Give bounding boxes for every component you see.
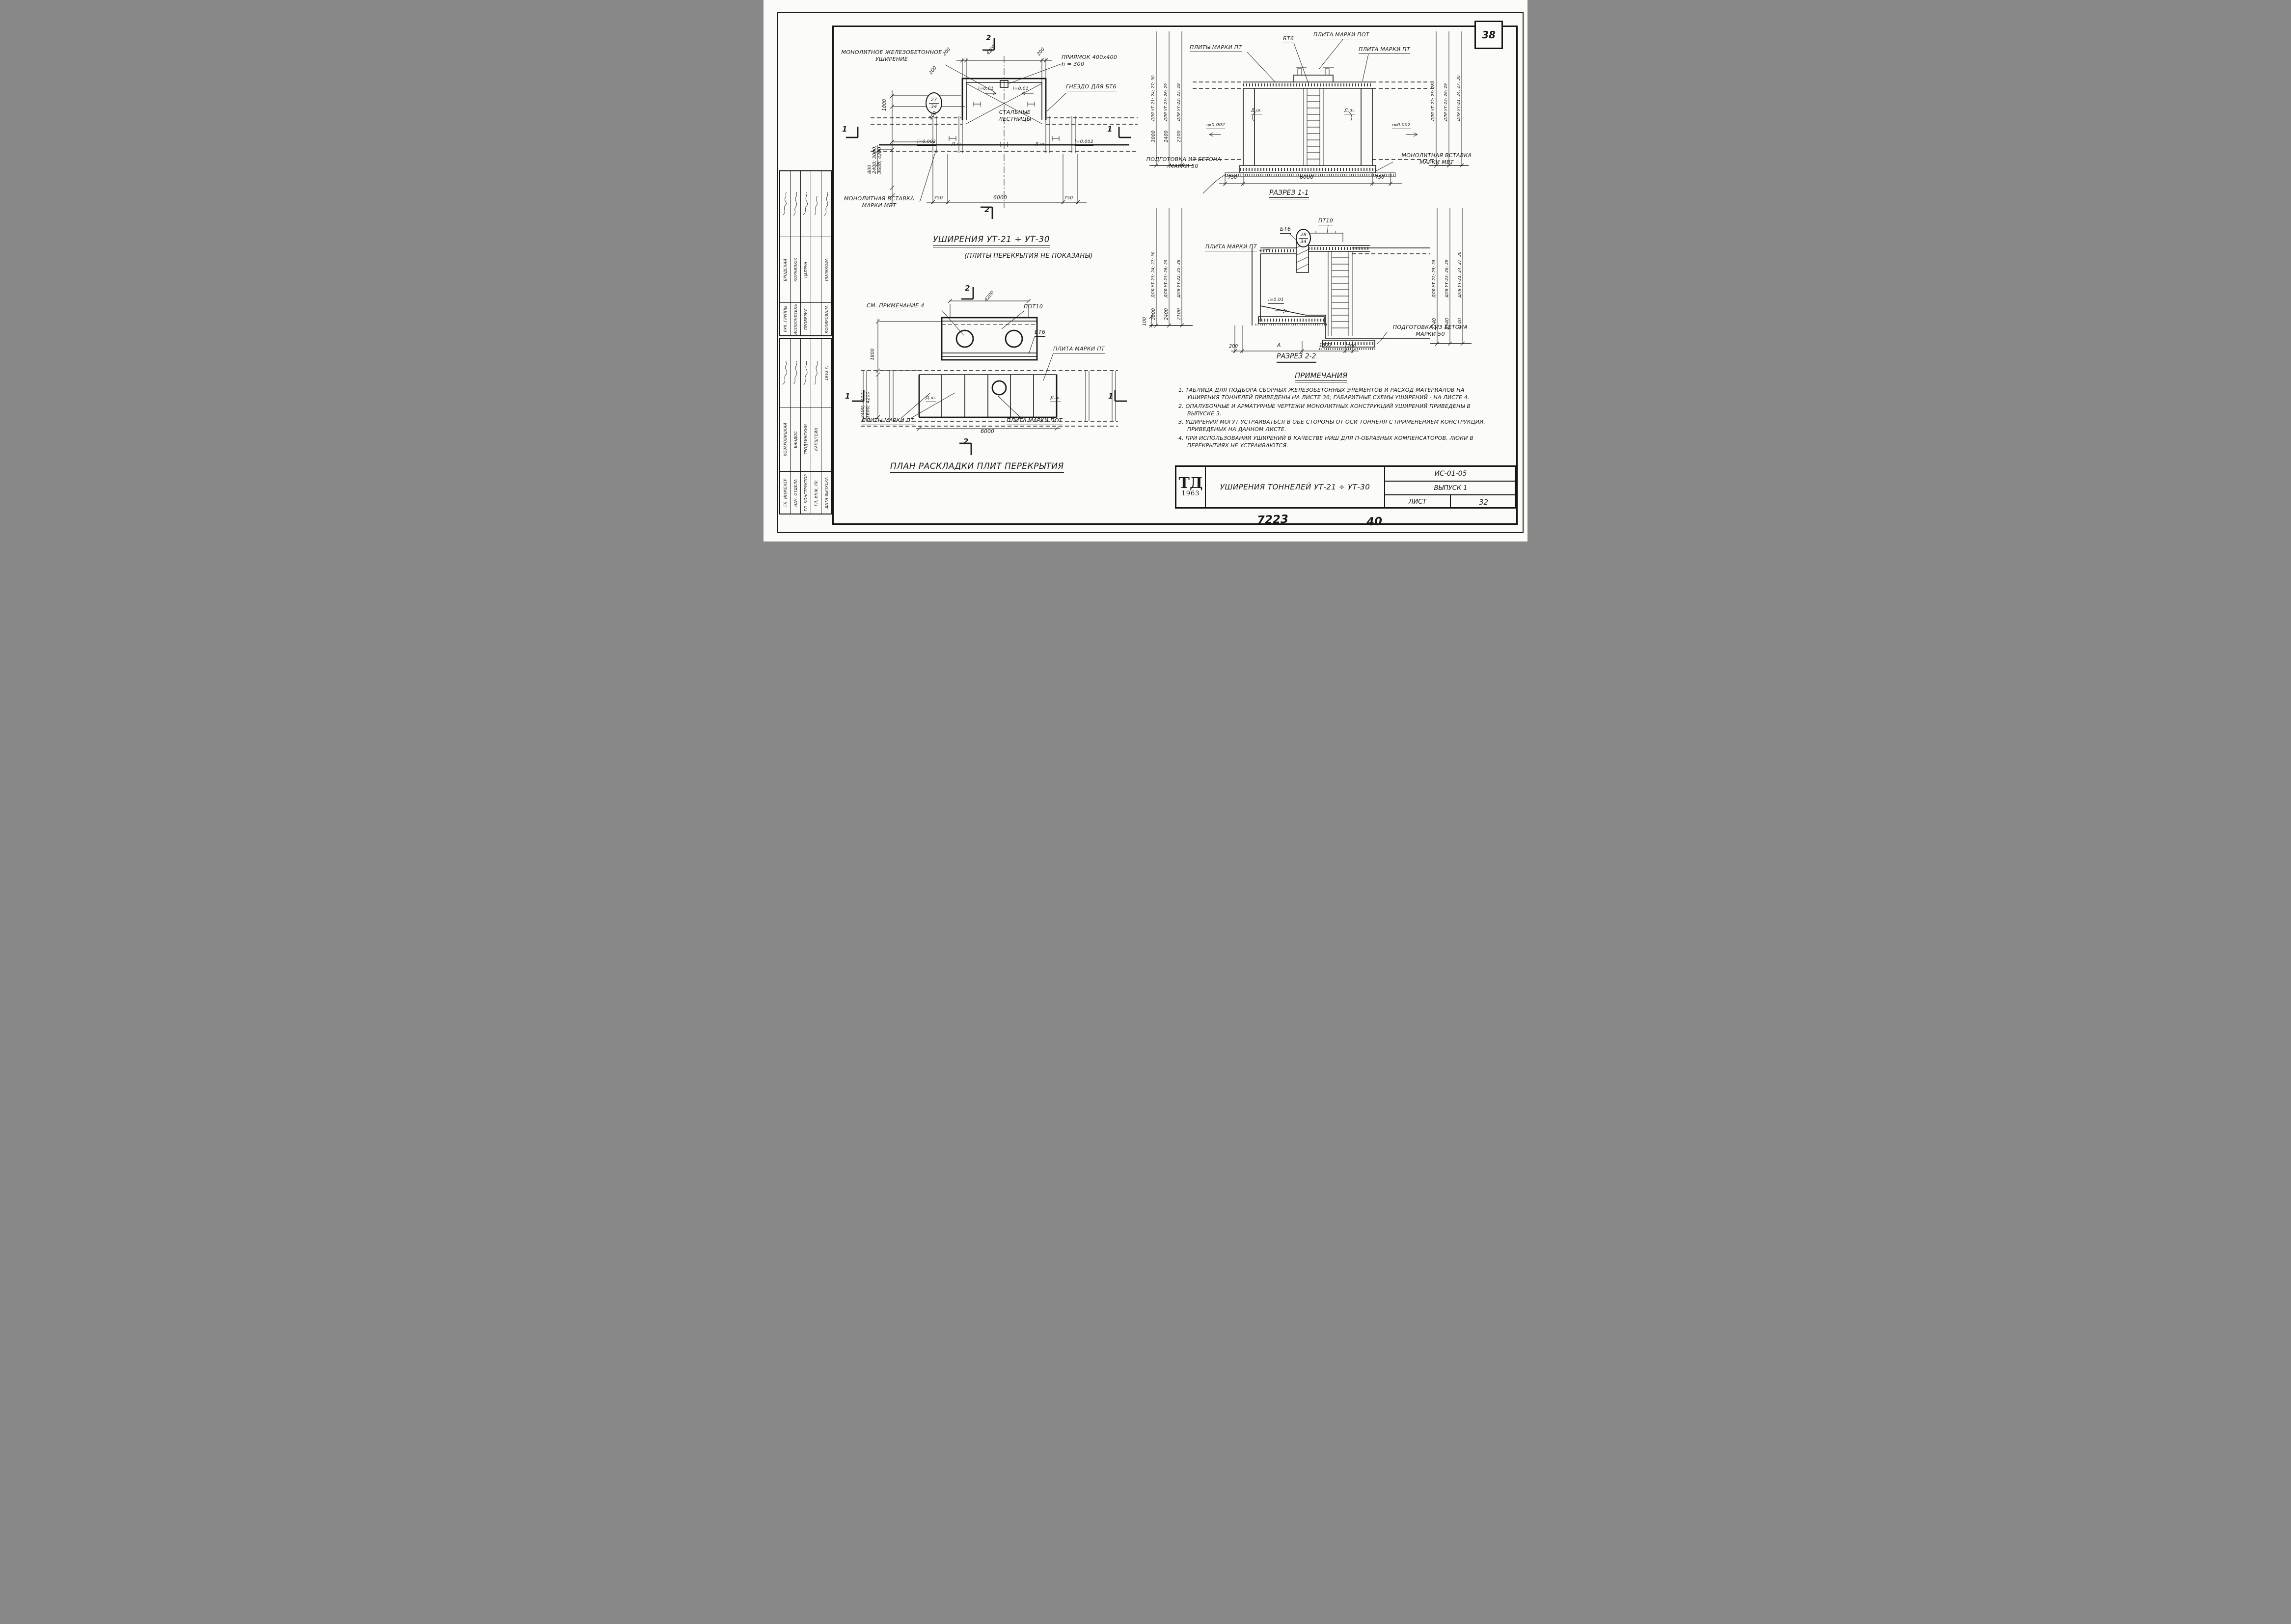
detail-mark-top: 28 <box>1300 232 1307 238</box>
col-label-left-3: ДЛЯ УТ-22; 25; 28 <box>1177 30 1181 121</box>
signature-icon <box>812 189 820 219</box>
role-cell: ДАТА ВЫПУСКА <box>821 472 831 514</box>
col-label-right-2: ДЛЯ УТ-23; 26; 29 <box>1445 210 1449 298</box>
label-pit: ПРИЯМОК 400х400 h = 300 <box>1062 54 1140 68</box>
dim-bottom-6000: 6000 <box>993 194 1007 201</box>
label-plate-pt: ПЛИТА МАРКИ ПТ <box>1053 346 1105 353</box>
org-logo: ТД 1963 <box>1176 467 1205 507</box>
col-label-right-3: ДЛЯ УТ-21; 24; 27; 30 <box>1458 210 1462 298</box>
dim-bottom-750-right: 750 <box>1064 195 1073 201</box>
label-slope-i0002-left: i=0.002 <box>917 139 936 146</box>
label-joint-right: Д.ш. <box>1344 108 1355 114</box>
dim-left-800: 800 <box>868 157 873 174</box>
section-mark-2-top: 2 <box>965 284 970 293</box>
label-monolithic-insert: МОНОЛИТНАЯ ВСТАВКА МАРКИ МВТ <box>836 195 922 209</box>
label-plate-pt: ПЛИТА МАРКИ ПТ <box>1205 244 1257 251</box>
label-bt6: БТ6 <box>1280 226 1291 234</box>
col-label-left-2: ДЛЯ УТ-23; 26; 29 <box>1164 30 1169 121</box>
stamp-col: 1963 г. ДАТА ВЫПУСКА <box>821 339 831 514</box>
stamp-col <box>811 171 821 335</box>
dimension-lines <box>876 299 1061 431</box>
role-cell: ГЛ. КОНСТРУКТОР <box>801 472 811 514</box>
title-block: ТД 1963 УШИРЕНИЯ ТОННЕЛЕЙ УТ-21 ÷ УТ-30 … <box>1175 465 1516 509</box>
role-cell: ГЛ. ИНЖЕНЕР <box>780 472 790 514</box>
role-cell: НАЧ. ОТДЕЛА <box>791 472 800 514</box>
role-cell: ПРОВЕРИЛ <box>801 303 811 335</box>
stamp-role: ИСПОЛНИТЕЛЬ <box>793 304 798 335</box>
empty-cell <box>821 407 831 472</box>
signature-icon <box>781 358 789 388</box>
signature-cell <box>791 171 800 237</box>
stamp-col: БАНДОС НАЧ. ОТДЕЛА <box>791 339 801 514</box>
signature-icon <box>802 189 810 219</box>
col-label-left-1: ДЛЯ УТ-21; 24; 27; 30 <box>1151 30 1156 121</box>
name-cell: ПОЛЯКОВА <box>821 237 831 303</box>
dim-750-right: 750 <box>1375 175 1384 180</box>
label-slope-right: i=0.002 <box>1392 123 1411 129</box>
label-steel-stairs: СТАЛЬНЫЕ ЛЕСТНИЦЫ <box>988 109 1042 123</box>
sidebar-stamp-lower: КОЗАРОВИЦКИЙ ГЛ. ИНЖЕНЕР БАНДОС НАЧ. ОТД… <box>779 338 832 514</box>
dim-left-3000: 3000 <box>1151 296 1156 320</box>
role-cell: РУК. ГРУППЫ <box>780 303 790 335</box>
section-mark-1-right: 1 <box>1107 125 1112 134</box>
note-item-3: 3. УШИРЕНИЯ МОГУТ УСТРАИВАТЬСЯ В ОБЕ СТО… <box>1178 419 1499 433</box>
dim-left-range: 2400; 3000; 3600; 4200 <box>873 127 883 174</box>
name-cell: БАНДОС <box>791 407 800 472</box>
dim-6000: 6000 <box>981 428 994 434</box>
role-cell: ИСПОЛНИТЕЛЬ <box>791 303 800 335</box>
stamp-name: КОЗАРОВИЦКИЙ <box>783 423 788 456</box>
section-1-1-title: РАЗРЕЗ 1-1 <box>1269 189 1309 199</box>
stamp-name: БРОДСКИЙ <box>783 259 788 281</box>
col-label-right-1: ДЛЯ УТ-22; 25; 28 <box>1432 210 1437 298</box>
signature-icon <box>802 358 810 388</box>
stamp-name: КАПШТЕЙН <box>814 428 818 451</box>
section-mark-2-bottom: 2 <box>984 205 989 214</box>
signature-icon <box>791 189 799 219</box>
col-label-left-2: ДЛЯ УТ-23; 26; 29 <box>1164 210 1169 298</box>
stamp-role: КОПИРОВАЛА <box>824 305 829 333</box>
dim-bottom-750-left: 750 <box>934 195 943 201</box>
section-mark-1-right: 1 <box>1108 392 1113 401</box>
cover-slab <box>942 318 1037 360</box>
slope-arrows <box>1209 112 1418 136</box>
dim-left-1800: 1800 <box>882 86 887 111</box>
dim-left-2400: 2400 <box>1164 296 1169 320</box>
label-joint-right: Д.ш. <box>1035 142 1046 148</box>
label-bt6: БТ6 <box>1283 35 1294 43</box>
titleblock-drawing-title: УШИРЕНИЯ ТОННЕЛЕЙ УТ-21 ÷ УТ-30 <box>1205 467 1384 507</box>
label-plates-pt: ПЛИТЫ МАРКИ ПТ <box>1190 44 1242 52</box>
signature-icon <box>822 189 830 219</box>
dim-1800: 1800 <box>1319 343 1331 348</box>
section-mark-1-left: 1 <box>845 392 850 401</box>
titleblock-code: ИС-01-05 <box>1384 467 1516 482</box>
col-label-right-1: ДЛЯ УТ-22; 25; 28 <box>1431 30 1436 121</box>
label-slope-left: i=0.002 <box>1206 123 1225 129</box>
notes-heading: ПРИМЕЧАНИЯ <box>1295 371 1347 382</box>
label-joint-right: Д.ш. <box>1050 396 1061 402</box>
signature-icon <box>812 358 820 388</box>
note-item-2: 2. ОПАЛУБОЧНЫЕ И АРМАТУРНЫЕ ЧЕРТЕЖИ МОНО… <box>1178 403 1499 418</box>
section-mark-1-left: 1 <box>842 125 847 134</box>
stamp-year: 1963 г. <box>824 366 829 380</box>
section-2-2-title: РАЗРЕЗ 2-2 <box>1277 352 1316 363</box>
label-prep-concrete: ПОДГОТОВКА ИЗ БЕТОНА МАРКИ 50 <box>1386 324 1474 338</box>
col-label-right-2: ДЛЯ УТ-23; 26; 29 <box>1444 30 1448 121</box>
dim-left-2100: 2100 <box>1177 118 1182 142</box>
label-prep-concrete: ПОДГОТОВКА ИЗ БЕТОНА МАРКИ 50 <box>1133 156 1235 170</box>
section-mark-2-bottom: 2 <box>963 437 968 446</box>
stamp-col: КОЗАРОВИЦКИЙ ГЛ. ИНЖЕНЕР <box>780 339 791 514</box>
signature-cell <box>821 171 831 237</box>
name-cell: КАПШТЕЙН <box>811 407 821 472</box>
dim-200-right: 200 <box>1347 344 1356 349</box>
dim-100: 100 <box>1143 312 1147 326</box>
label-joint-left: Д.ш. <box>952 142 962 148</box>
titleblock-issue: ВЫПУСК 1 <box>1384 482 1516 495</box>
col-label-left-3: ДЛЯ УТ-22; 25; 28 <box>1177 210 1181 298</box>
stamp-col: ЦАПРУН ПРОВЕРИЛ <box>801 171 811 335</box>
note-item-1: 1. ТАБЛИЦА ДЛЯ ПОДБОРА СБОРНЫХ ЖЕЛЕЗОБЕТ… <box>1178 387 1499 402</box>
handwritten-number-right: 40 <box>1366 515 1383 528</box>
label-joint-left: Д.ш. <box>926 396 936 402</box>
label-see-note: СМ. ПРИМЕЧАНИЕ 4 <box>867 302 925 310</box>
org-logo-letters: ТД <box>1179 477 1203 490</box>
name-cell: ГРОДЗИНСКИЙ <box>801 407 811 472</box>
label-slope-i0002-right: i=0.002 <box>1075 139 1093 146</box>
dim-left-range: 2400; 3000; 3600; 4200 <box>861 371 871 418</box>
name-cell: КОЗАРОВИЦКИЙ <box>780 407 790 472</box>
detail-mark-top: 27 <box>931 97 937 103</box>
extension-lines-left <box>1149 31 1193 167</box>
stamp-name: ГРОДЗИНСКИЙ <box>804 424 808 455</box>
signature-cell <box>811 339 821 407</box>
dim-A: А <box>1277 342 1281 349</box>
dim-left-2100: 2100 <box>1177 296 1182 320</box>
label-slope-i001-left: i=0.01 <box>978 86 994 92</box>
org-logo-year: 1963 <box>1181 490 1200 497</box>
dimension-lines <box>875 58 1087 206</box>
dim-left-3000: 3000 <box>1151 118 1156 142</box>
label-monolithic-insert: МОНОЛИТНАЯ ВСТАВКА МАРКИ МВТ <box>1393 152 1480 166</box>
stamp-name: БАНДОС <box>793 431 798 448</box>
drawing-sheet: 38 БРОДСКИЙ РУК. ГРУППЫ КОРНИЛЮК ИСПОЛНИ… <box>764 0 1527 541</box>
col-label-left-1: ДЛЯ УТ-21; 24; 27; 30 <box>1151 210 1156 298</box>
label-plates-pt: ПЛИТЫ МАРКИ ПТ <box>862 417 914 425</box>
plan-top-subtitle: (ПЛИТЫ ПЕРЕКРЫТИЯ НЕ ПОКАЗАНЫ) <box>926 252 1132 260</box>
label-plate-pt: ПЛИТА МАРКИ ПТ <box>1359 46 1410 54</box>
stamp-col: ПОЛЯКОВА КОПИРОВАЛА <box>821 171 831 335</box>
titleblock-sheet-number: 32 <box>1450 495 1516 509</box>
stamp-role: ГЛ. ИНЖ. ПР. <box>814 479 818 506</box>
signature-cell <box>780 339 790 407</box>
notes-list: 1. ТАБЛИЦА ДЛЯ ПОДБОРА СБОРНЫХ ЖЕЛЕЗОБЕТ… <box>1178 387 1499 451</box>
stamp-col: КОРНИЛЮК ИСПОЛНИТЕЛЬ <box>791 171 801 335</box>
stamp-name: ЦАПРУН <box>804 262 808 278</box>
signature-cell <box>811 171 821 237</box>
detail-mark-bottom: 34 <box>931 104 937 109</box>
dim-left-2400: 2400 <box>1164 118 1169 142</box>
signature-icon <box>791 358 799 388</box>
leader-lines <box>1259 225 1387 344</box>
signature-cell <box>801 339 811 407</box>
plan-bottom-title: ПЛАН РАСКЛАДКИ ПЛИТ ПЕРЕКРЫТИЯ <box>890 461 1064 474</box>
signature-cell <box>801 171 811 237</box>
stamp-role: НАЧ. ОТДЕЛА <box>793 479 798 507</box>
label-pot10: ПОТ10 <box>1024 303 1043 311</box>
stamp-name: КОРНИЛЮК <box>793 258 798 281</box>
name-cell: КОРНИЛЮК <box>791 237 800 303</box>
leader-lines <box>901 310 1053 418</box>
widening-walls <box>962 56 1046 208</box>
stamp-col: КАПШТЕЙН ГЛ. ИНЖ. ПР. <box>811 339 821 514</box>
plan-top-title: УШИРЕНИЯ УТ-21 ÷ УТ-30 <box>933 235 1050 247</box>
dim-6000: 6000 <box>1300 174 1313 180</box>
label-plate-pot: ПЛИТА МАРКИ ПОТ <box>1313 31 1369 39</box>
handwritten-number-left: 7223 <box>1257 513 1289 527</box>
label-bt6: БТ6 <box>1035 329 1045 337</box>
titleblock-sheet-label: ЛИСТ <box>1384 495 1450 509</box>
name-cell: БРОДСКИЙ <box>780 237 790 303</box>
col-label-right-3: ДЛЯ УТ-21; 24; 27; 30 <box>1457 30 1461 121</box>
stamp-role: ГЛ. ИНЖЕНЕР <box>783 479 788 507</box>
signature-icon <box>781 189 789 219</box>
label-slope-i001-right: i=0.01 <box>1013 86 1029 92</box>
plan-slab-layout-linework <box>832 282 1156 476</box>
stamp-role: РУК. ГРУППЫ <box>783 306 788 332</box>
signature-cell <box>780 171 790 237</box>
stamp-role: ДАТА ВЫПУСКА <box>824 477 829 509</box>
label-pt10: ПТ10 <box>1318 217 1333 225</box>
label-joint-left: Д.ш. <box>1251 108 1262 114</box>
detail-mark-bottom: 34 <box>1300 239 1307 244</box>
stamp-col: БРОДСКИЙ РУК. ГРУППЫ <box>780 171 791 335</box>
signature-cell <box>791 339 800 407</box>
sidebar-stamp-upper: БРОДСКИЙ РУК. ГРУППЫ КОРНИЛЮК ИСПОЛНИТЕЛ… <box>779 170 832 336</box>
note-item-4: 4. ПРИ ИСПОЛЬЗОВАНИИ УШИРЕНИЙ В КАЧЕСТВЕ… <box>1178 435 1499 450</box>
detail-mark-circle: 28 34 <box>1296 229 1311 247</box>
stamp-role: ГЛ. КОНСТРУКТОР <box>804 474 808 511</box>
section-mark-2-top: 2 <box>986 33 991 42</box>
date-cell: 1963 г. <box>821 339 831 407</box>
role-cell: КОПИРОВАЛА <box>821 303 831 335</box>
stamp-role: ПРОВЕРИЛ <box>804 308 808 330</box>
label-socket-bt6: ГНЕЗДО ДЛЯ БТ6 <box>1066 83 1117 91</box>
name-cell: ЦАПРУН <box>801 237 811 303</box>
label-monolithic-widening: МОНОЛИТНОЕ ЖЕЛЕЗОБЕТОННОЕ УШИРЕНИЕ <box>837 49 946 63</box>
dim-1800: 1800 <box>871 336 875 360</box>
dim-200-left: 200 <box>1229 344 1238 349</box>
dim-750-left: 750 <box>1228 175 1237 180</box>
label-plate-pot: ПЛИТА МАРКИ ПОТ <box>1007 417 1063 425</box>
name-cell <box>811 237 821 303</box>
role-cell <box>811 303 821 335</box>
stamp-name: ПОЛЯКОВА <box>824 258 829 281</box>
detail-mark-divider <box>929 103 939 104</box>
detail-mark-divider <box>1299 238 1308 239</box>
role-cell: ГЛ. ИНЖ. ПР. <box>811 472 821 514</box>
stamp-col: ГРОДЗИНСКИЙ ГЛ. КОНСТРУКТОР <box>801 339 811 514</box>
label-slope-i001: i=0.01 <box>1268 298 1284 304</box>
leader-lines <box>920 64 1066 202</box>
